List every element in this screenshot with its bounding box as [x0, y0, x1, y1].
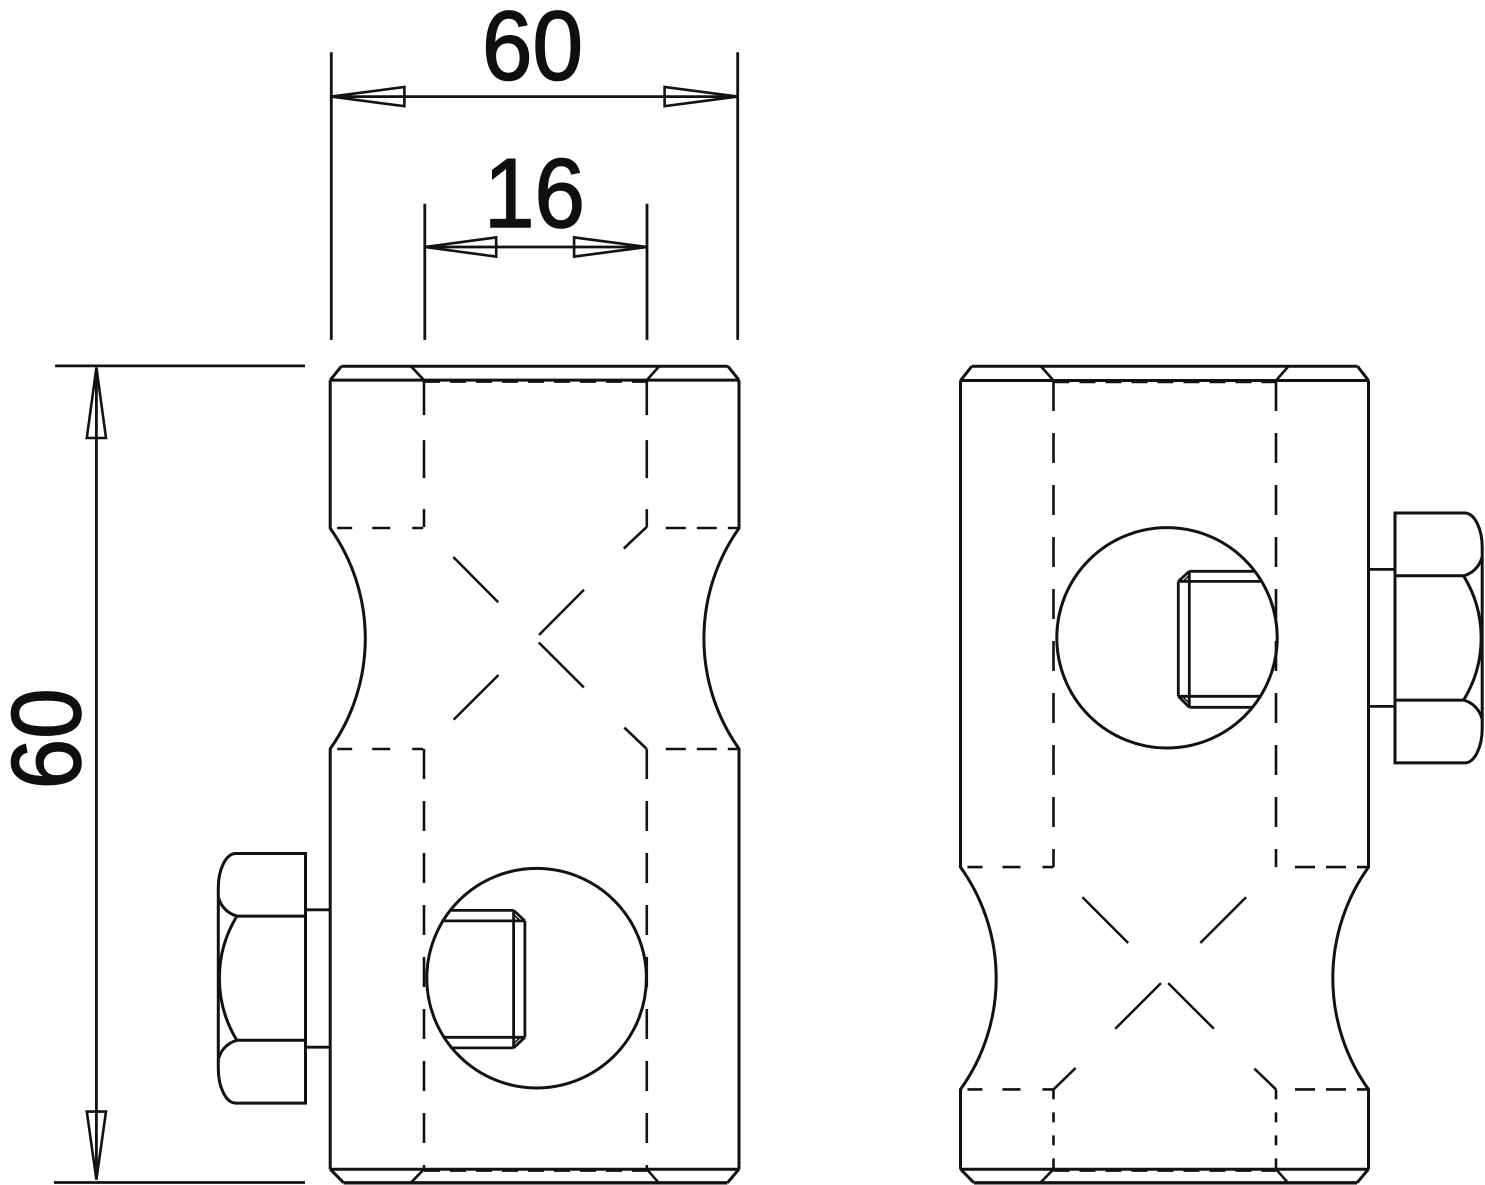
svg-text:60: 60	[482, 0, 583, 101]
svg-text:60: 60	[0, 688, 101, 789]
svg-text:16: 16	[484, 138, 585, 248]
